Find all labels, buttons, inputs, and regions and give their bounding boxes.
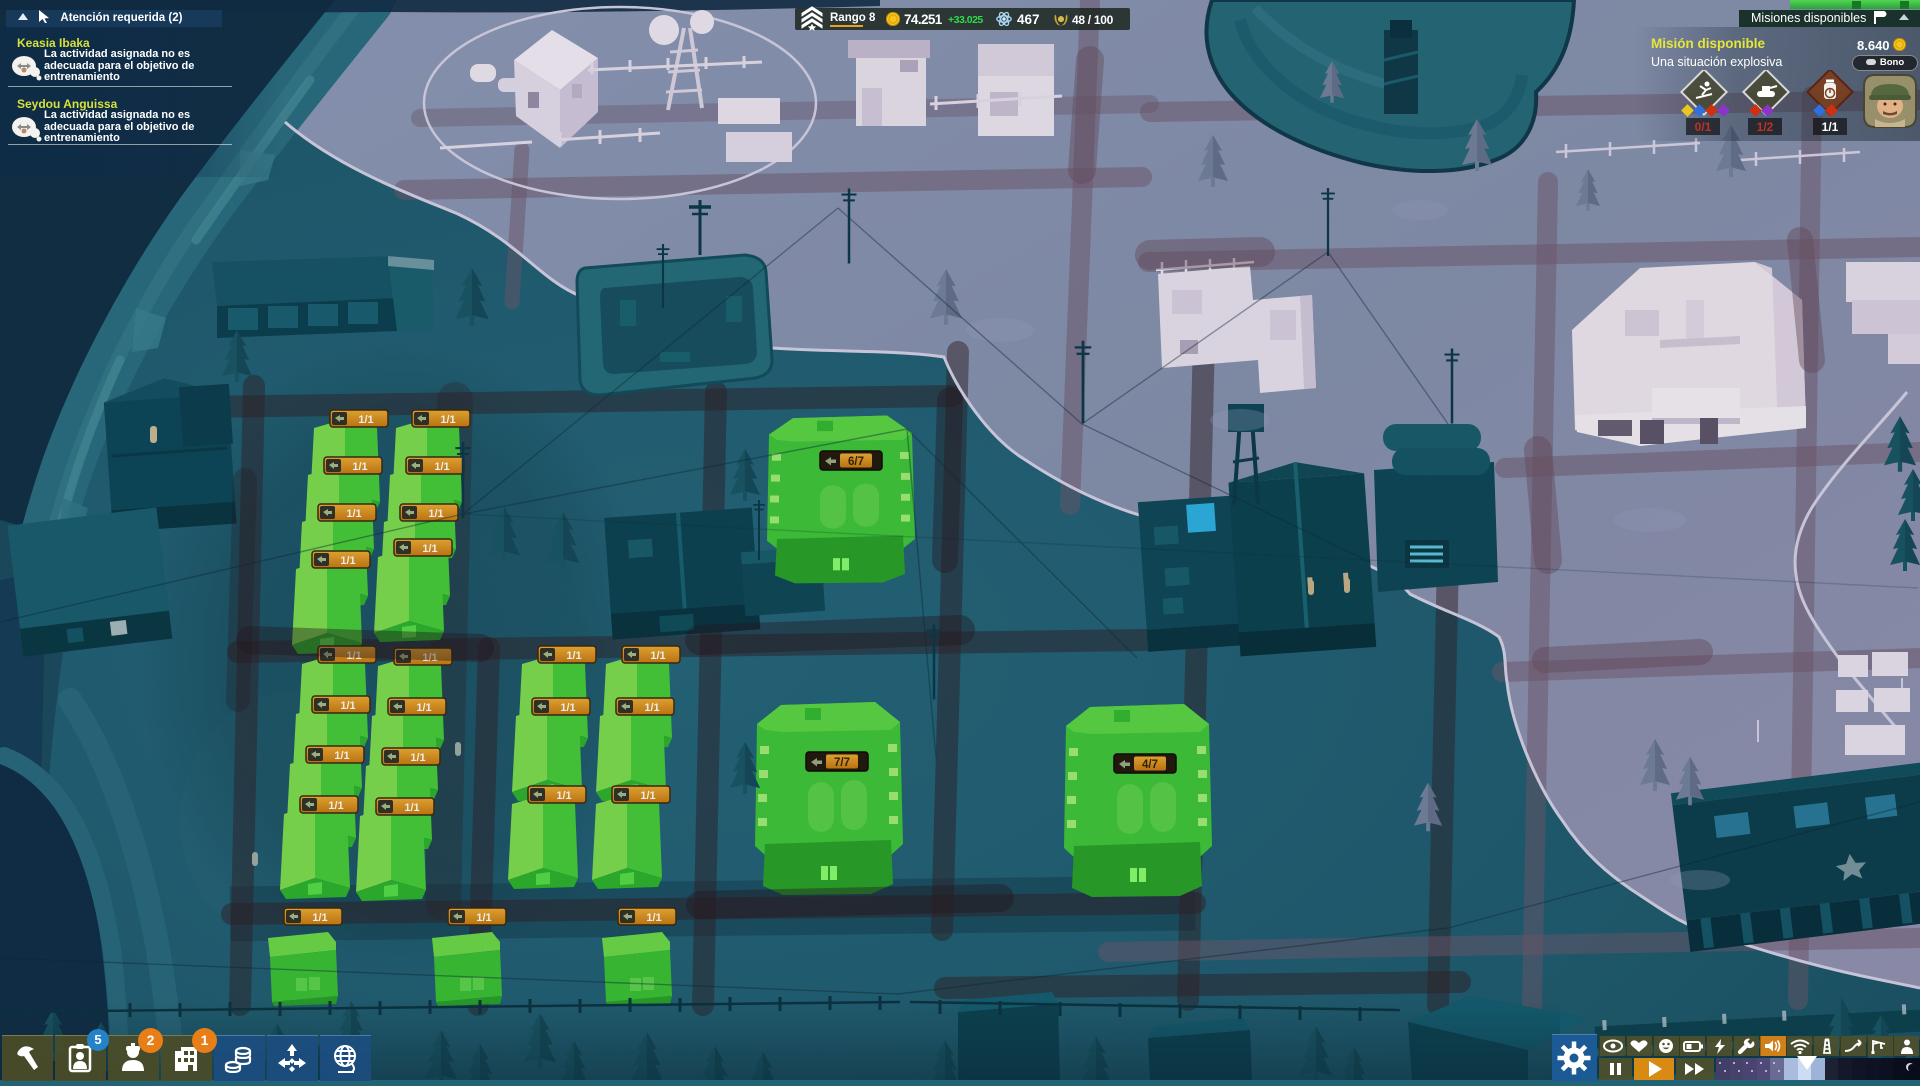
svg-text:1/2: 1/2 xyxy=(1757,120,1774,134)
svg-text:1/1: 1/1 xyxy=(1822,120,1839,134)
svg-text:0/1: 0/1 xyxy=(1695,120,1712,134)
